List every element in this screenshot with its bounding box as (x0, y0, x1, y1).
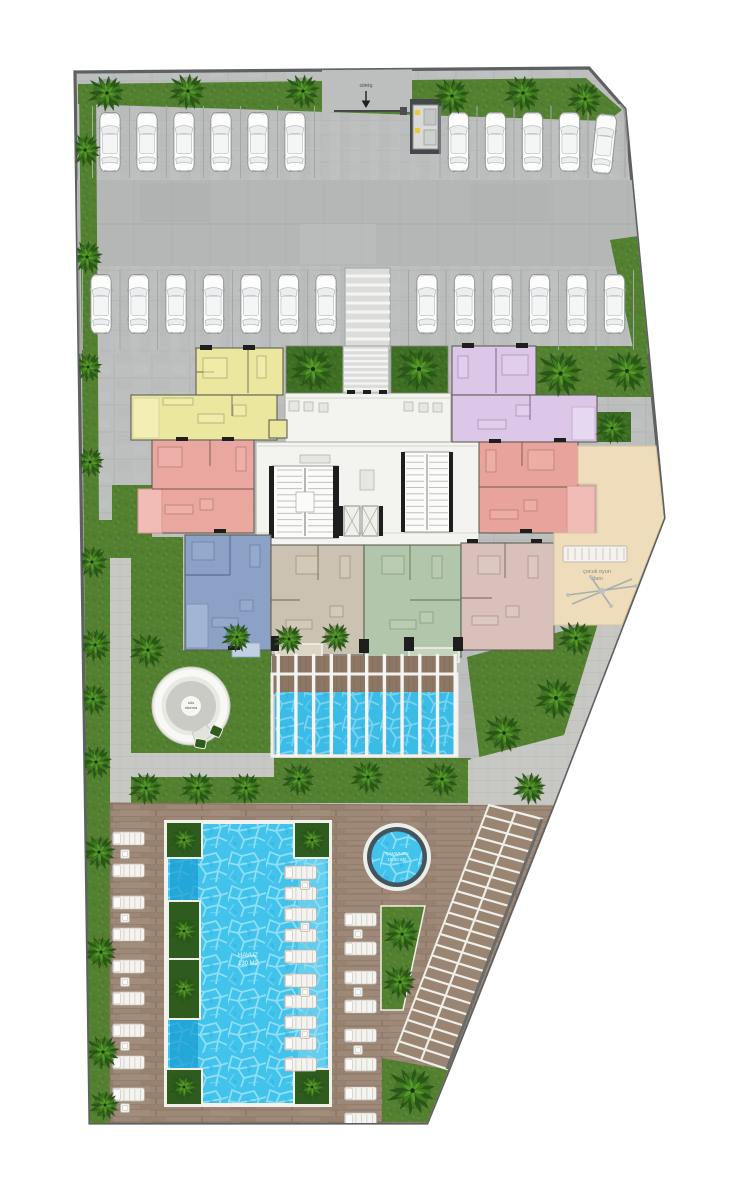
svg-text:çocuk oyun: çocuk oyun (583, 569, 611, 575)
svg-text:HAVUZ: HAVUZ (238, 953, 258, 959)
svg-text:15.50 M2: 15.50 M2 (387, 857, 407, 862)
svg-text:oturma: oturma (185, 705, 198, 710)
svg-text:GİRİŞ: GİRİŞ (359, 82, 372, 89)
svg-text:Ç.HAVUZU: Ç.HAVUZU (385, 851, 408, 856)
svg-text:130 M2: 130 M2 (238, 961, 259, 967)
